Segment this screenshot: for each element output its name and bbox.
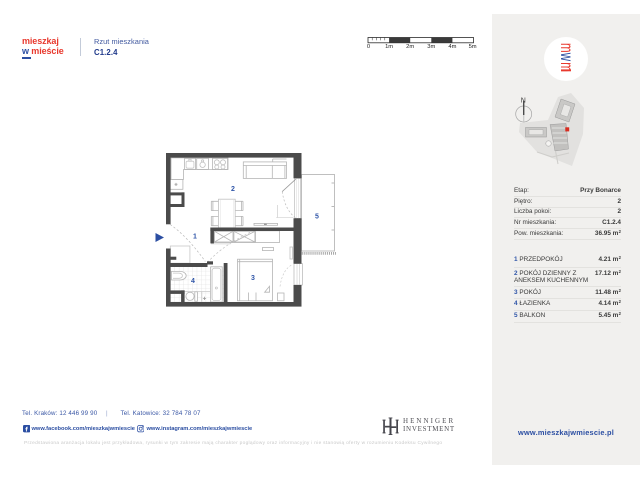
svg-text:1: 1 xyxy=(193,233,197,240)
svg-text:3: 3 xyxy=(251,275,255,282)
svg-text:5: 5 xyxy=(315,214,319,221)
svg-text:2: 2 xyxy=(231,186,235,193)
svg-text:w: w xyxy=(556,52,575,61)
svg-text:m: m xyxy=(556,43,575,53)
svg-text:4: 4 xyxy=(191,278,195,285)
